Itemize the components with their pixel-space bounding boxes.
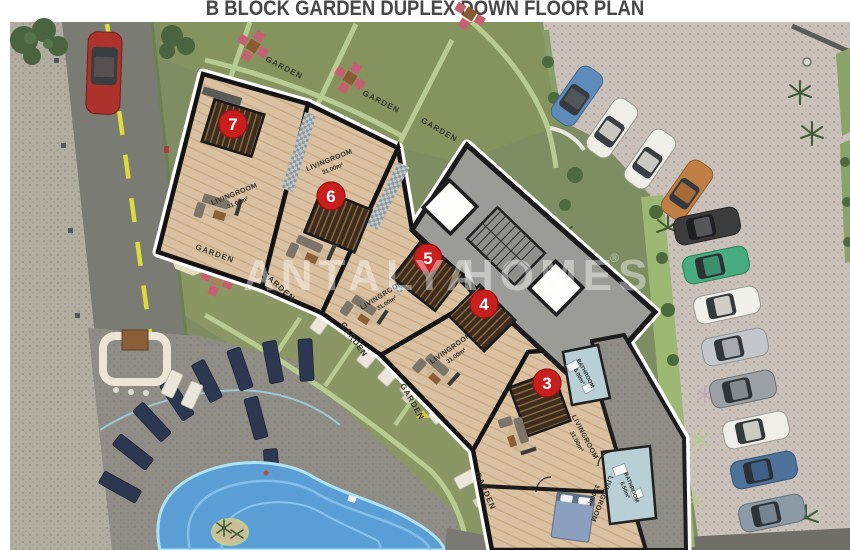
lamp-post — [803, 58, 811, 66]
watermark-registered-mark: ® — [610, 251, 619, 265]
unit-badge-6: 6 — [317, 182, 345, 210]
hydrant — [164, 146, 169, 153]
watermark-brand-1: ANTALYA — [243, 251, 484, 300]
watermark-brand-2: HOMES — [462, 251, 653, 300]
unit-number-7: 7 — [228, 115, 237, 134]
pool-island — [212, 519, 248, 545]
site-plan-canvas: GARDEN GARDEN GARDEN GARDEN GARDEN GARDE… — [0, 0, 850, 550]
unit-number-6: 6 — [326, 187, 335, 206]
watermark: ANTALYA HOMES ® — [243, 251, 653, 300]
unit-number-3: 3 — [542, 374, 551, 393]
swimmer — [264, 471, 269, 476]
unit-badge-3: 3 — [533, 369, 561, 397]
site-plan-page: B BLOCK GARDEN DUPLEX DOWN FLOOR PLAN — [0, 0, 850, 550]
red-car — [86, 31, 123, 114]
unit-badge-7: 7 — [219, 110, 247, 138]
